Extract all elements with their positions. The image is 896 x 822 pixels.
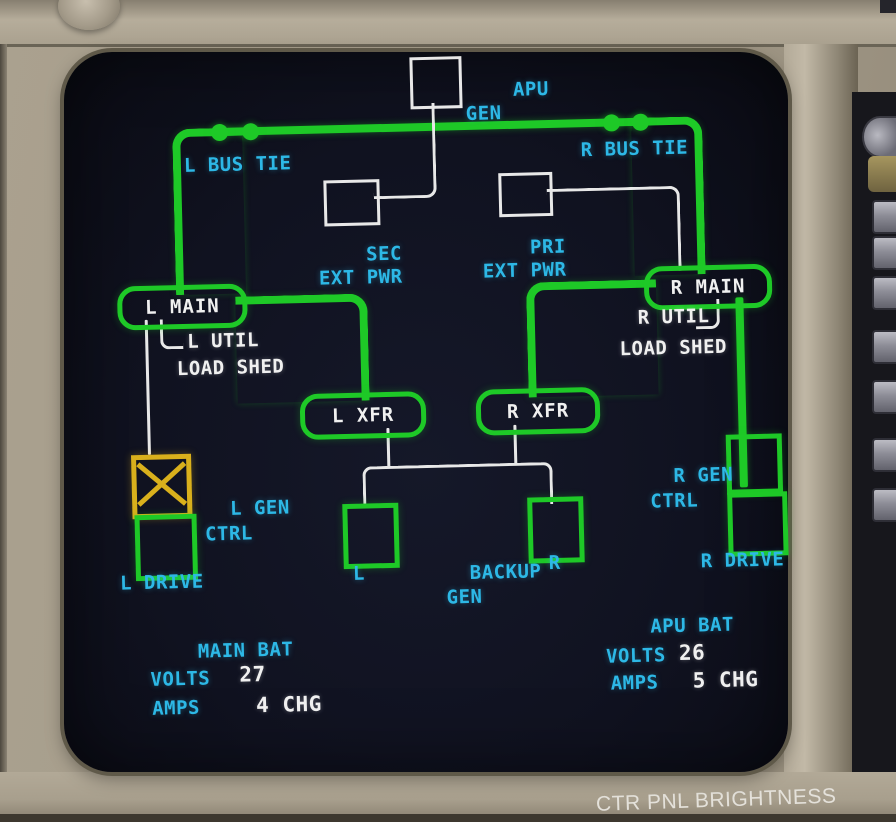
- r-gen-ctrl-label: R GENCTRL: [625, 438, 723, 540]
- lmain-to-lgen-line: [145, 320, 151, 455]
- side-button-3[interactable]: [872, 276, 896, 310]
- apu-bat-amps-label: AMPS: [610, 671, 658, 694]
- l-bus-tie-label: L BUS TIE: [184, 152, 292, 177]
- main-bat-volts-label: VOLTS: [150, 667, 210, 690]
- side-gold-knob[interactable]: [868, 156, 896, 192]
- side-button-4[interactable]: [872, 330, 896, 364]
- backup-gen-l-label: L: [353, 563, 365, 585]
- side-button-1[interactable]: [872, 200, 896, 234]
- pri-ext-pwr-label: PRIEXT PWR: [470, 212, 578, 307]
- backup-gen-r-label: R: [548, 552, 560, 574]
- backup-gen-bus-line: [362, 462, 553, 509]
- r-bus-tie-breaker-dot: [603, 114, 620, 131]
- r-gen-ctrl-box: [726, 433, 783, 494]
- l-bus-tie-breaker-dot2: [242, 123, 259, 140]
- panel-top-bar: [0, 0, 896, 47]
- l-util-label: L UTIL: [187, 329, 259, 353]
- pri-ext-pwr-box: [498, 172, 553, 217]
- panel-bottom-edge: [0, 814, 896, 822]
- crt-bezel-right: [784, 44, 858, 778]
- r-drive-box: [727, 491, 789, 556]
- r-drive-label: R DRIVE: [700, 548, 784, 572]
- main-bat-volts-value: 27: [239, 662, 266, 687]
- apu-bat-volts-label: VOLTS: [606, 644, 666, 667]
- l-gen-ctrl-label: L GENCTRL: [181, 471, 275, 573]
- panel-gap: [880, 0, 896, 13]
- backup-gen-l-box: [342, 503, 400, 569]
- elec-synoptic-diagram: L MAIN R MAIN L XFR R XFR APUGEN L BUS T…: [59, 43, 796, 778]
- apugen-to-sec-line: [371, 103, 436, 200]
- side-button-2[interactable]: [872, 236, 896, 270]
- apu-bat-volts-value: 26: [679, 640, 706, 665]
- side-button-6[interactable]: [872, 438, 896, 472]
- main-bat-title: MAIN BAT: [198, 638, 294, 662]
- l-util-load-shed: LOAD SHED: [177, 356, 285, 381]
- r-bus-tie-label: R BUS TIE: [580, 137, 688, 162]
- apu-bat-amps-value: 5 CHG: [692, 667, 758, 693]
- l-main-bus-pill: L MAIN: [117, 283, 248, 330]
- apu-gen-box: [409, 56, 462, 109]
- sec-ext-pwr-label: SECEXT PWR: [306, 219, 414, 314]
- panel-left-edge: [0, 44, 7, 822]
- main-bat-amps-value: 4 CHG: [256, 692, 322, 718]
- apu-gen-label: APUGEN: [464, 55, 550, 149]
- r-util-label: R UTIL: [638, 305, 710, 329]
- backup-gen-label: BACKUPGEN: [421, 536, 507, 634]
- side-knob[interactable]: [862, 116, 896, 158]
- bus-line-left-corner: [172, 127, 246, 295]
- side-button-7[interactable]: [872, 488, 896, 522]
- main-bat-amps-label: AMPS: [152, 697, 200, 720]
- apu-bat-title: APU BAT: [650, 614, 734, 638]
- r-main-bus-pill: R MAIN: [644, 264, 773, 311]
- l-drive-label: L DRIVE: [120, 571, 204, 595]
- r-xfr-bus-pill: R XFR: [475, 387, 600, 436]
- side-button-5[interactable]: [872, 380, 896, 414]
- l-xfr-bus-pill: L XFR: [300, 391, 427, 440]
- r-util-load-shed: LOAD SHED: [619, 336, 727, 361]
